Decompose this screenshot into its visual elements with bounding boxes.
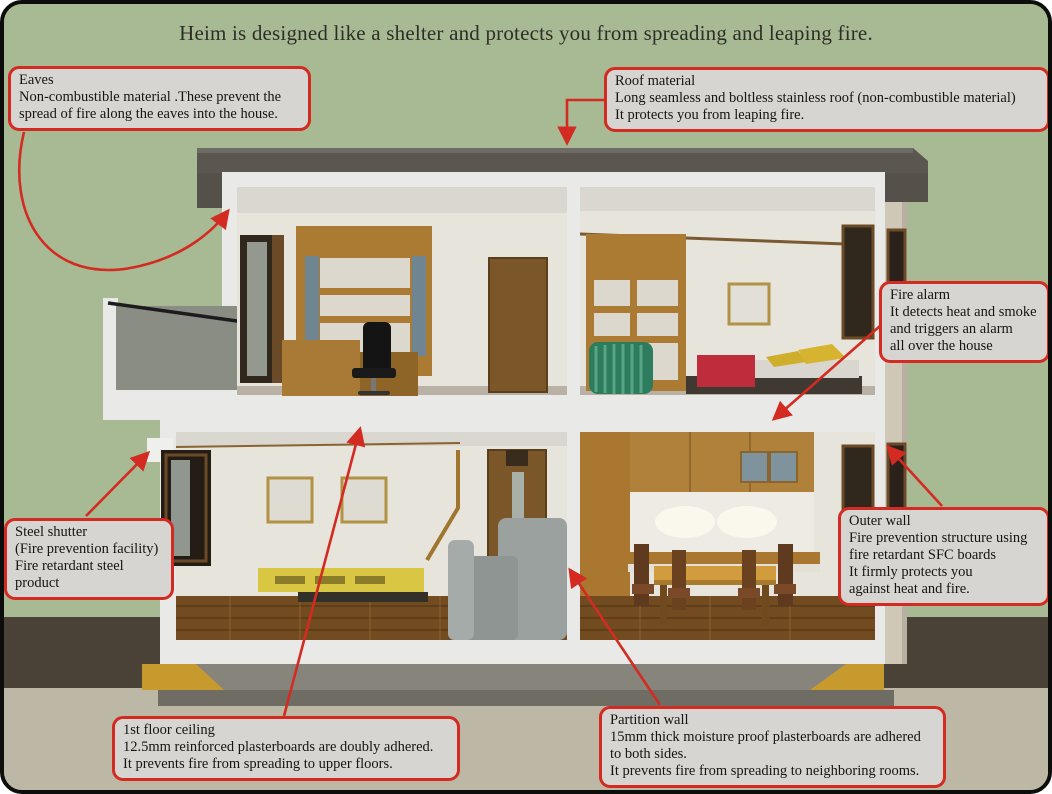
callout-text-line: Roof material [615,73,1039,90]
bedroom-ceiling [580,187,875,211]
callout-text-line: Non-combustible material .These prevent … [19,89,300,106]
callout-text-line: Fire retardant steel [15,558,163,575]
screenshot-frame: Heim is designed like a shelter and prot… [0,0,1052,794]
wall-picture-frame [729,284,769,324]
hanging-cabinet [741,452,768,482]
callout-text-line: Partition wall [610,712,935,729]
foundation-slab [174,664,874,690]
bed-red-blanket [697,355,755,387]
slide-content: Heim is designed like a shelter and prot… [0,0,1052,794]
living-door-transom [506,450,528,466]
study-shelf-panel-right [412,256,426,356]
callout-fire-alarm: Fire alarm It detects heat and smoke and… [879,281,1050,363]
roof-top-edge [197,148,913,153]
room-dining [580,432,875,640]
callout-text-line: 1st floor ceiling [123,722,449,739]
callout-text-line: It detects heat and smoke [890,304,1039,321]
foundation [142,664,894,706]
callout-text-line: Steel shutter [15,524,163,541]
callout-text-line: It prevents fire from spreading to neigh… [610,763,935,780]
callout-text-line: fire retardant SFC boards [849,547,1039,564]
callout-text-line: It prevents fire from spreading to upper… [123,756,449,773]
callout-text-line: 15mm thick moisture proof plasterboards … [610,729,935,746]
page-title: Heim is designed like a shelter and prot… [0,21,1052,46]
room-bedroom [580,187,875,395]
callout-partition-wall: Partition wall 15mm thick moisture proof… [599,706,946,788]
callout-text-line: It protects you from leaping fire. [615,107,1039,124]
study-door [489,258,547,392]
callout-text-line: product [15,575,163,592]
under-cabinet-light [655,506,715,538]
callout-text-line: 12.5mm reinforced plasterboards are doub… [123,739,449,756]
wall-picture-frame [342,478,386,522]
room-living [147,432,567,640]
callout-text-line: Fire prevention structure using [849,530,1039,547]
footing [158,690,894,706]
scene: Heim is designed like a shelter and prot… [0,0,1052,794]
callout-text-line: all over the house [890,338,1039,355]
study-shelf-bar [320,288,410,295]
callout-text-line: and triggers an alarm [890,321,1039,338]
callout-text-line: Long seamless and boltless stainless roo… [615,90,1039,107]
callout-text-line: to both sides. [610,746,935,763]
callout-text-line: Eaves [19,72,300,89]
study-ceiling [237,187,567,213]
callout-text-line: Outer wall [849,513,1039,530]
callout-steel-shutter: Steel shutter (Fire prevention facility)… [4,518,174,600]
callout-eaves: Eaves Non-combustible material .These pr… [8,66,311,131]
hanging-cabinet [770,452,797,482]
dining-wood-floor [580,596,875,640]
callout-text-line: It firmly protects you [849,564,1039,581]
balcony-post [103,298,118,392]
callout-text-line: against heat and fire. [849,581,1039,598]
study-shelf-bar [320,316,410,323]
callout-outer-wall: Outer wall Fire prevention structure usi… [838,507,1050,606]
under-cabinet-light [717,506,777,538]
striped-armchair [589,342,653,394]
balcony [103,298,244,420]
callout-text-line: spread of fire along the eaves into the … [19,106,300,123]
study-window-glass [247,242,267,376]
bedroom-window [843,226,873,338]
wall-picture-frame [268,478,312,522]
balcony-slab [103,388,225,420]
study-desk [282,340,360,396]
callout-text-line: Fire alarm [890,287,1039,304]
room-study [237,187,567,396]
callout-text-line: (Fire prevention facility) [15,541,163,558]
callout-first-floor-ceiling: 1st floor ceiling 12.5mm reinforced plas… [112,716,460,781]
callout-roof-material: Roof material Long seamless and boltless… [604,67,1050,132]
